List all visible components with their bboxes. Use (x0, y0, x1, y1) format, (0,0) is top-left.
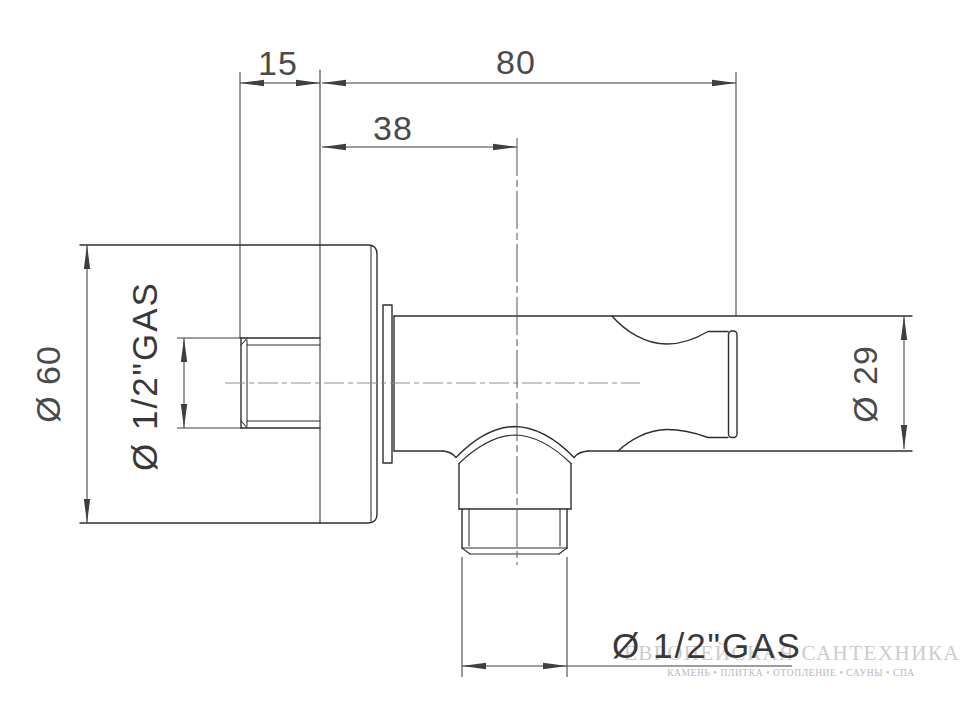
bottom-wave (618, 430, 728, 452)
inlet-thread-label: Ø 1/2"GAS (125, 281, 164, 471)
dimension-inlet-thread: Ø 1/2"GAS (125, 281, 241, 471)
dim-15-label: 15 (258, 44, 298, 82)
dim-80-label: 80 (496, 43, 536, 81)
outlet-dome (443, 427, 588, 510)
dimension-15: 15 (240, 44, 320, 338)
top-wave (612, 316, 728, 344)
dimension-outlet-thread: Ø 1/2"GAS (462, 557, 802, 677)
collar (383, 305, 392, 463)
dim-dia60-label: Ø 60 (29, 345, 67, 423)
end-cap (729, 331, 738, 438)
dim-dia29-label: Ø 29 (846, 345, 884, 423)
dimension-dia-60: Ø 60 (29, 245, 90, 523)
dimension-80: 80 (322, 43, 736, 316)
dimension-dia-29: Ø 29 (846, 316, 907, 449)
outlet-thread (462, 509, 567, 554)
watermark-subtitle: КАМЕНЬ • ПЛИТКА • ОТОПЛЕНИЕ • САУНЫ • СП… (667, 668, 915, 678)
outlet-thread-label: Ø 1/2"GAS (612, 626, 802, 665)
technical-drawing-canvas: ЕВРОПЕЙСКАЯ САНТЕХНИКА КАМЕНЬ • ПЛИТКА •… (0, 0, 962, 725)
dimension-38: 38 (322, 109, 517, 150)
dim-38-label: 38 (373, 109, 413, 147)
technical-drawing-page: ЕВРОПЕЙСКАЯ САНТЕХНИКА КАМЕНЬ • ПЛИТКА •… (0, 0, 962, 725)
